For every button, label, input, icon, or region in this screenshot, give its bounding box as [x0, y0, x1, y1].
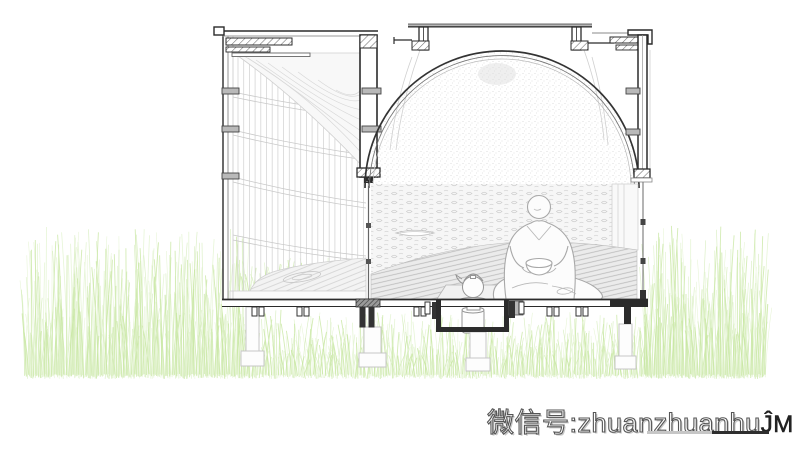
porch-deck	[230, 258, 366, 300]
right-edge-plate	[610, 299, 648, 307]
roof-bracket-right	[571, 27, 614, 50]
dome-roof-plate	[394, 25, 614, 51]
beam-end	[356, 299, 380, 307]
watermark-underline-gray	[647, 431, 712, 434]
building-section	[214, 25, 652, 372]
monk-head	[528, 196, 551, 219]
wechat-watermark: 微信号:zhuanzhuanhuĴM	[487, 401, 787, 441]
left-roof	[214, 27, 378, 57]
floor-joists	[252, 307, 588, 327]
watermark-prefix: 微信号:	[487, 408, 578, 438]
right-edge-step	[624, 306, 631, 324]
right-window	[612, 184, 638, 250]
architectural-section-screenshot: 微信号:zhuanzhuanhuĴM	[0, 0, 800, 454]
watermark-underline-dark	[712, 431, 769, 434]
roof-bracket-left	[394, 27, 429, 50]
window-head	[634, 169, 650, 178]
left-parapet-cap	[214, 27, 224, 35]
dome	[365, 50, 639, 188]
wall-connector-tabs	[222, 88, 239, 179]
grass-strokes	[22, 229, 252, 379]
